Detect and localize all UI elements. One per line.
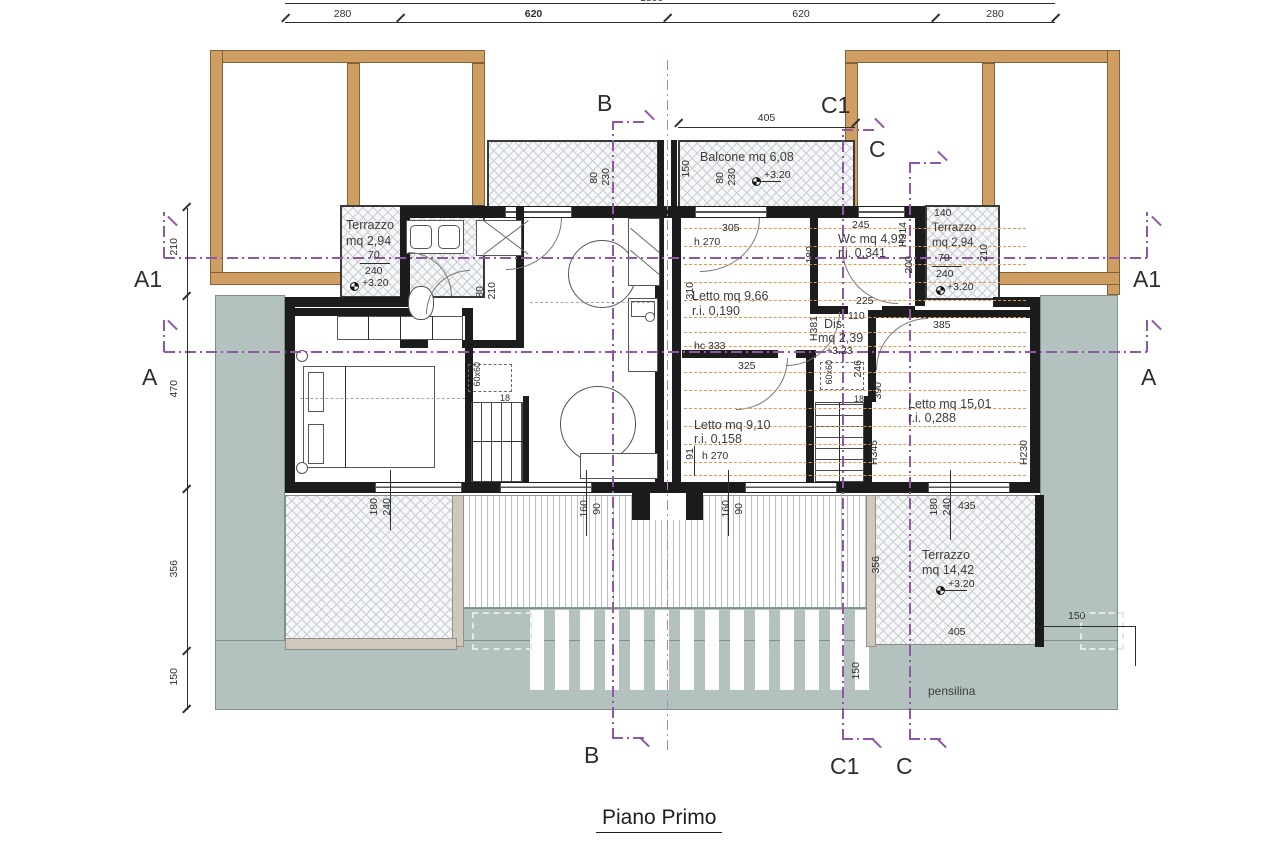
dim-60x60: 60x60 (824, 360, 834, 385)
dim-140: 140 (934, 207, 952, 219)
pergola-beam (982, 272, 1120, 285)
dim-h270: h 270 (702, 450, 728, 462)
section-label-a1-left: A1 (134, 266, 162, 293)
wardrobe-divider (400, 316, 401, 340)
wardrobe-divider (432, 316, 433, 340)
stairs-walkline (839, 402, 840, 482)
wall (1035, 495, 1044, 647)
dim-200: 200 (903, 256, 915, 274)
room-ri: r.i. 0,158 (694, 432, 742, 446)
room-label-balcone: Balcone mq 6,08 (700, 150, 794, 164)
section-line-b (612, 123, 614, 739)
balcony-left (487, 140, 659, 206)
dim-line-total (285, 3, 1055, 4)
section-arrow (639, 737, 650, 748)
wall (915, 206, 925, 306)
window (745, 483, 837, 492)
section-arrow (1151, 320, 1162, 331)
dim-70: 70 (938, 252, 950, 264)
center-axis-line (667, 60, 668, 750)
dim-230: 230 (726, 168, 738, 186)
section-arrow (167, 216, 178, 227)
wall (806, 358, 814, 483)
room-ri: r.i. 0,288 (908, 411, 956, 425)
room-label-wc: Wc mq 4,92 (838, 232, 905, 246)
wall (285, 308, 428, 316)
room-area: mq 2,94 (346, 234, 391, 248)
dim-150: 150 (680, 160, 692, 178)
section-arrow (1151, 216, 1162, 227)
section-arrow (937, 151, 948, 162)
hidden-edge-dashed-right (1080, 612, 1124, 650)
dim-90: 90 (733, 503, 745, 515)
level: +3.20 (362, 277, 389, 289)
room-label-terrazzo-right: Terrazzo (932, 222, 976, 234)
wall (285, 297, 408, 307)
room-label-terrazzo-left: Terrazzo (346, 218, 394, 232)
dim-witness (950, 470, 951, 540)
section-label-c1-bottom: C1 (830, 753, 859, 780)
pergola-post (472, 63, 485, 210)
dim-witness (390, 470, 391, 530)
dim-80: 80 (714, 172, 726, 184)
section-elbow (909, 162, 941, 164)
dim-325: 325 (738, 360, 756, 372)
dim-210: 210 (978, 244, 990, 262)
dim-total: 1800 (640, 0, 663, 4)
roof-slope-line (684, 346, 1026, 347)
room-label-letto3: Letto mq 15,01 (908, 397, 991, 411)
roof-slope-line (684, 264, 1026, 265)
dim-line-150 (1044, 626, 1135, 627)
dim-H230: H230 (1018, 440, 1030, 465)
dim-line-top (285, 22, 1055, 23)
section-line-c (909, 164, 911, 740)
door-arc (876, 318, 928, 370)
section-elbow (163, 318, 165, 352)
section-elbow (612, 121, 648, 123)
section-label-a-right: A (1141, 364, 1156, 391)
dim-240: 240 (941, 498, 953, 516)
room-label-letto2: Letto mq 9,10 (694, 418, 770, 432)
stairs-walkline (471, 441, 523, 442)
section-arrow (644, 110, 655, 121)
level-line (757, 181, 781, 182)
dim-180: 180 (368, 498, 380, 516)
dim-225: 225 (856, 295, 874, 307)
dim-160: 160 (720, 500, 732, 518)
dim-witness (694, 446, 695, 476)
room-ri: r.i. 0,341 (838, 246, 886, 260)
level: +3.20 (947, 281, 974, 293)
dim-240: 240 (936, 268, 954, 280)
dim-H345: H345 (868, 440, 880, 465)
height-dashed-line (530, 302, 655, 303)
roof-slope-line (684, 475, 1026, 476)
dim-60x60: 60x60 (472, 362, 482, 387)
section-line-c1 (842, 131, 844, 740)
dim-435: 435 (958, 500, 976, 512)
dim-385: 385 (930, 319, 954, 331)
section-label-a-left: A (142, 364, 157, 391)
lamp (296, 462, 308, 474)
level-balcone: +3.20 (764, 169, 791, 181)
dim-80: 80 (588, 172, 600, 184)
sink (410, 225, 432, 249)
dim-280: 280 (935, 8, 1055, 20)
room-area: mq 2,39 (818, 331, 863, 345)
section-elbow (1146, 212, 1148, 258)
floor-plan-canvas: A1 A A1 A B B C1 C C1 C 1800 280 620 620… (0, 0, 1280, 853)
room-label-dis: Dis. (824, 317, 846, 331)
height-dashed-line (300, 398, 465, 399)
dim-150: 150 (850, 662, 862, 680)
dim-356: 356 (870, 556, 882, 574)
window (695, 207, 767, 217)
desk (580, 453, 658, 479)
pergola-beam (845, 50, 1120, 63)
bed-line (345, 366, 346, 468)
section-line-a1 (164, 257, 1147, 259)
round-table (568, 240, 636, 308)
dim-witness (586, 470, 587, 536)
wall-niche (650, 493, 686, 520)
roof-slope-line (684, 462, 1026, 463)
dim-280: 280 (285, 8, 400, 20)
pergola-slats (530, 610, 877, 690)
section-elbow (1146, 318, 1148, 352)
section-label-c-top: C (869, 136, 886, 163)
dim-70: 70 (368, 249, 380, 261)
hidden-edge-dashed-left (472, 612, 532, 650)
dim-210: 210 (486, 282, 498, 300)
dim-80: 80 (474, 286, 486, 298)
dim-240: 240 (381, 498, 393, 516)
section-elbow (842, 129, 878, 131)
wall (658, 140, 664, 206)
label-pensilina: pensilina (928, 684, 975, 698)
dim-240: 240 (365, 265, 383, 277)
room-area: mq 14,42 (922, 563, 974, 577)
terrace-bottom-left (285, 495, 457, 645)
level-marker (936, 286, 945, 295)
roof-slope-line (684, 390, 1026, 391)
dim-line-405 (678, 127, 855, 128)
window (500, 483, 592, 492)
section-arrow (874, 118, 885, 129)
wall (671, 140, 677, 206)
section-label-b-bottom: B (584, 742, 599, 769)
room-label-letto1: Letto mq 9,66 (692, 289, 768, 303)
section-label-b-top: B (597, 90, 612, 117)
dim-line-left (187, 208, 188, 710)
fraction-line (932, 266, 962, 267)
section-label-a1-right: A1 (1133, 266, 1161, 293)
dim-210: 210 (168, 238, 180, 256)
parapet-wall (452, 495, 464, 647)
sink (438, 225, 460, 249)
fraction-line (360, 263, 390, 264)
level-marker (350, 282, 359, 291)
pillow (308, 424, 324, 464)
dim-405: 405 (678, 112, 855, 124)
dim-620: 620 (667, 8, 935, 20)
round-table (560, 386, 636, 462)
dim-356: 356 (168, 560, 180, 578)
dim-245: 245 (852, 219, 870, 231)
dim-witness (728, 470, 729, 536)
dim-180: 180 (928, 498, 940, 516)
dim-witness (1135, 626, 1136, 666)
dim-470: 470 (168, 380, 180, 398)
window (858, 207, 905, 217)
room-label-terrazzo-big: Terrazzo (922, 548, 970, 562)
window (928, 483, 1010, 492)
wall (285, 297, 295, 493)
section-arrow (871, 738, 882, 749)
roof-slope-line (684, 282, 1026, 283)
dim-hc333: hc 333 (694, 340, 726, 352)
pergola-beam (210, 50, 485, 63)
level: +3.23 (826, 345, 853, 357)
level-line (941, 590, 967, 591)
wall (400, 340, 428, 348)
dim-405: 405 (948, 626, 966, 638)
dim-160: 160 (578, 500, 590, 518)
lamp (645, 312, 655, 322)
pergola-beam (210, 272, 360, 285)
wall (1030, 300, 1040, 493)
page-title: Piano Primo (596, 806, 722, 833)
pillow (308, 372, 324, 412)
dim-180: 180 (804, 246, 816, 264)
dim-h270: h 270 (694, 236, 720, 248)
dim-230: 230 (600, 168, 612, 186)
dim-390: 390 (872, 382, 884, 400)
dim-18: 18 (500, 393, 510, 403)
dim-90: 90 (591, 503, 603, 515)
room-area: mq 2,94 (932, 237, 974, 249)
dim-305: 305 (722, 222, 740, 234)
wardrobe-divider (368, 316, 369, 340)
dim-246: 246 (852, 360, 864, 378)
section-label-c-bottom: C (896, 753, 913, 780)
section-line-a (164, 351, 1147, 353)
level: +3.20 (948, 578, 975, 590)
section-arrow (167, 320, 178, 331)
wall (523, 396, 529, 483)
parapet-wall (285, 638, 457, 650)
section-arrow (936, 738, 947, 749)
dim-620: 620 (400, 8, 667, 20)
section-elbow (163, 212, 165, 258)
door-arc (506, 218, 562, 270)
stairs-left-unit (471, 402, 523, 482)
room-ri: r.i. 0,190 (692, 304, 740, 318)
dim-150: 150 (1068, 610, 1086, 622)
dim-110: 110 (848, 310, 865, 322)
wall (993, 297, 1040, 307)
dim-18: 18 (854, 394, 864, 404)
pergola-post (210, 50, 223, 285)
dim-150: 150 (168, 668, 180, 686)
window (375, 483, 462, 492)
